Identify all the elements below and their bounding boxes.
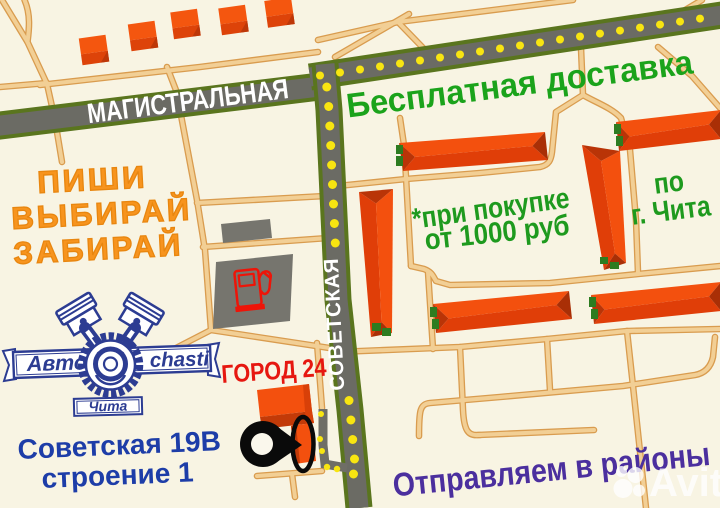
svg-text:Avito: Avito xyxy=(649,461,720,505)
svg-text:chasti: chasti xyxy=(150,347,211,372)
svg-text:Авто: Авто xyxy=(25,350,87,376)
svg-text:строение 1: строение 1 xyxy=(41,456,194,494)
svg-text:Чита: Чита xyxy=(88,397,127,414)
